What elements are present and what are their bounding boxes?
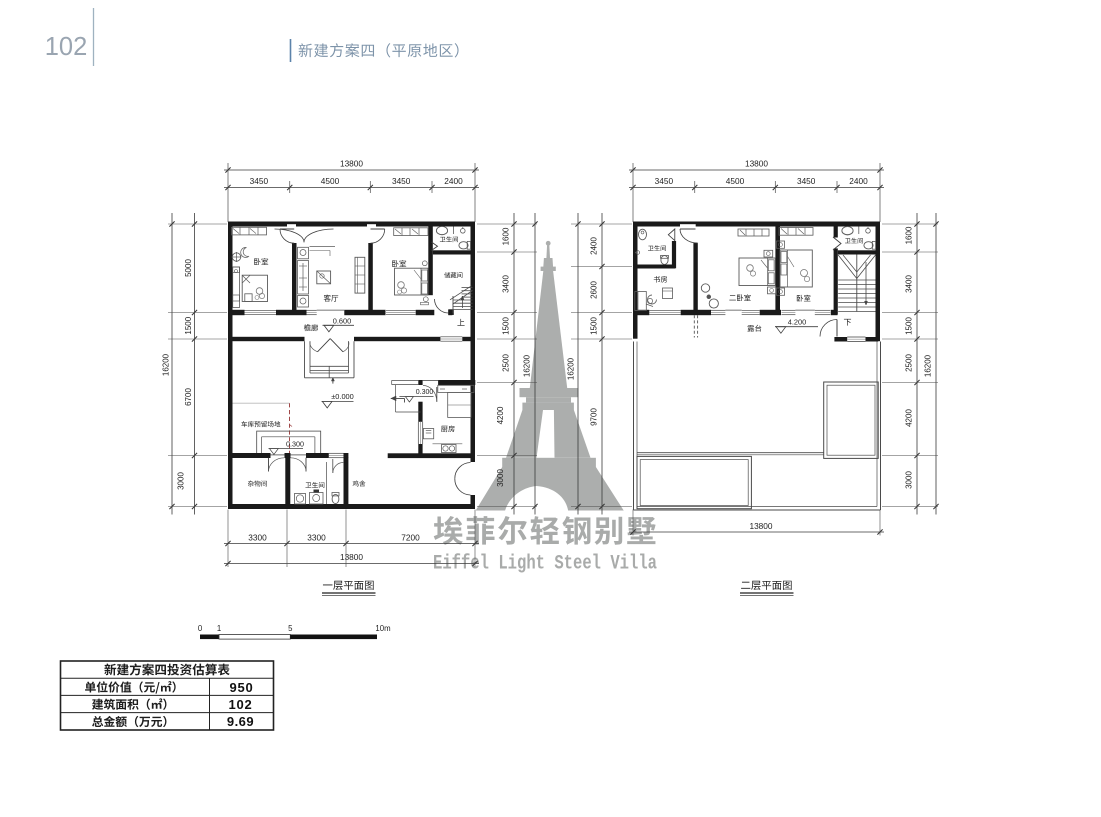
- svg-text:13800: 13800: [340, 552, 363, 562]
- svg-text:1500: 1500: [590, 317, 599, 335]
- svg-text:1600: 1600: [905, 226, 914, 244]
- svg-text:16200: 16200: [162, 353, 171, 376]
- svg-text:4500: 4500: [321, 176, 340, 186]
- svg-text:0.300: 0.300: [416, 389, 434, 396]
- svg-text:7200: 7200: [401, 533, 420, 543]
- svg-text:13800: 13800: [340, 159, 363, 169]
- svg-text:1600: 1600: [502, 227, 511, 245]
- svg-text:3450: 3450: [655, 176, 674, 186]
- svg-text:3400: 3400: [905, 275, 914, 293]
- svg-text:3300: 3300: [248, 533, 267, 543]
- svg-text:16200: 16200: [523, 354, 532, 377]
- svg-text:5: 5: [288, 624, 293, 633]
- svg-text:3000: 3000: [496, 469, 505, 487]
- svg-text:2500: 2500: [905, 354, 914, 372]
- svg-text:16200: 16200: [567, 357, 576, 380]
- svg-text:±0.000: ±0.000: [331, 392, 354, 401]
- svg-text:0.600: 0.600: [333, 317, 352, 326]
- svg-text:4.200: 4.200: [788, 318, 807, 327]
- svg-text:102: 102: [228, 697, 252, 712]
- svg-text:3000: 3000: [177, 472, 186, 490]
- svg-text:950: 950: [229, 680, 253, 695]
- svg-text:102: 102: [45, 33, 88, 61]
- svg-text:2500: 2500: [502, 354, 511, 372]
- svg-text:3450: 3450: [250, 176, 269, 186]
- svg-text:16200: 16200: [924, 354, 933, 377]
- svg-text:5000: 5000: [184, 259, 193, 277]
- svg-text:4200: 4200: [905, 409, 914, 427]
- svg-text:3400: 3400: [502, 275, 511, 293]
- svg-text:Eiffel Light Steel Villa: Eiffel Light Steel Villa: [433, 553, 657, 576]
- svg-text:1500: 1500: [905, 317, 914, 335]
- svg-text:13800: 13800: [749, 521, 772, 531]
- svg-text:3300: 3300: [307, 533, 326, 543]
- svg-text:6700: 6700: [184, 388, 193, 406]
- svg-text:2600: 2600: [590, 281, 599, 299]
- svg-text:4200: 4200: [496, 406, 505, 424]
- svg-text:1500: 1500: [502, 317, 511, 335]
- svg-text:2400: 2400: [849, 176, 868, 186]
- svg-text:3450: 3450: [797, 176, 816, 186]
- svg-text:9.69: 9.69: [227, 714, 254, 729]
- svg-text:1500: 1500: [184, 316, 193, 334]
- svg-text:3450: 3450: [392, 176, 411, 186]
- svg-text:3000: 3000: [905, 471, 914, 489]
- svg-text:10m: 10m: [375, 624, 390, 633]
- svg-text:2400: 2400: [444, 176, 463, 186]
- svg-text:0.300: 0.300: [286, 440, 304, 449]
- svg-text:9700: 9700: [590, 408, 599, 426]
- svg-text:2400: 2400: [590, 237, 599, 255]
- svg-text:13800: 13800: [745, 159, 768, 169]
- svg-text:4500: 4500: [726, 176, 745, 186]
- svg-text:1: 1: [217, 624, 221, 633]
- svg-text:0: 0: [198, 624, 203, 633]
